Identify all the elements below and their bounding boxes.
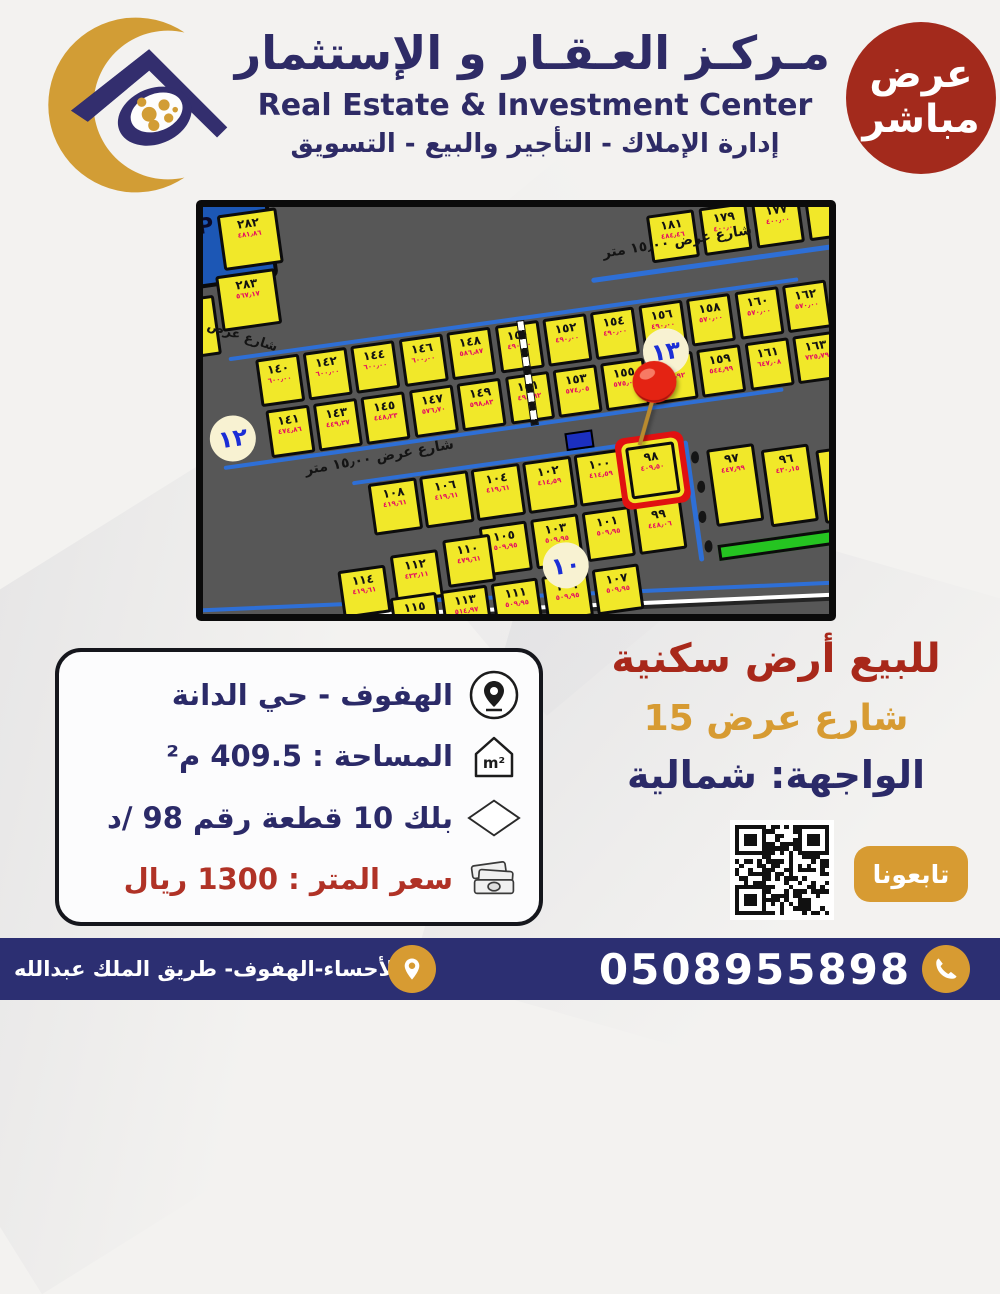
map-plot-١٥٤: ١٥٤٤٩٠٫٠٠ — [590, 306, 640, 360]
map-plot-١٠٦: ١٠٦٤١٩٫٦١ — [419, 470, 475, 528]
follow-us-badge[interactable]: تابعونا — [854, 846, 968, 902]
block-circle-12: ١٢ — [207, 413, 259, 465]
location-pin-icon — [388, 945, 436, 993]
card-row-block: بلك 10 قطعة رقم 98 /د — [77, 791, 521, 845]
direct-offer-badge: عرض مباشر — [846, 22, 996, 174]
block-text: بلك 10 قطعة رقم 98 /د — [107, 801, 453, 835]
svg-text:m²: m² — [483, 754, 505, 772]
map-plot-١٦١: ١٦١٦٤٧٫٠٨ — [744, 337, 794, 391]
map-plot-١١٣: ١١٣٥١٤٫٩٧ — [440, 585, 493, 621]
map-plot-١٠٧: ١٠٧٥٠٩٫٩٥ — [592, 563, 645, 615]
area-text: المساحة : 409.5 م² — [166, 739, 453, 773]
map-plot-partial — [215, 200, 277, 207]
house-m2-icon: m² — [467, 729, 521, 783]
company-title-arabic: مـركـز العـقـار و الإستثمار — [240, 26, 830, 80]
card-row-price: سعر المتر : 1300 ريال — [77, 852, 521, 906]
money-icon — [467, 852, 521, 906]
qr-pattern — [735, 825, 829, 915]
map-plot-١٦٢: ١٦٢٥٧٠٫٠٠ — [782, 279, 832, 333]
company-title-english: Real Estate & Investment Center — [240, 88, 830, 123]
footer-bar: الأحساء-الهفوف- طريق الملك عبدالله 05089… — [0, 938, 1000, 1000]
price-text: سعر المتر : 1300 ريال — [124, 862, 453, 896]
company-logo-icon — [42, 12, 234, 198]
map-plot-١٦٣: ١٦٣٧٢٥٫٧٩ — [792, 331, 836, 385]
map-plot-١٤٢: ١٤٢٦٠٠٫٠٠ — [303, 347, 353, 401]
map-plot-١٠٠: ١٠٠٤١٤٫٥٩ — [573, 448, 629, 506]
street-handwriting-mark — [704, 540, 714, 553]
map-plot-١١١: ١١١٥٠٩٫٩٥ — [491, 578, 544, 621]
map-plot-١٤٤: ١٤٤٦٠٠٫٠٠ — [351, 340, 401, 394]
map-plot-١٤٣: ١٤٣٤٤٩٫٣٧ — [313, 398, 363, 452]
map-plot-٩٨: ٩٨٤٠٩٫٥٠ — [625, 441, 681, 499]
map-rotated-layer: P شارع عرض ١٥٫٠٠ متر شارع عرض ١٥٫٠٠ متر … — [196, 200, 836, 621]
map-plot-١٦٠: ١٦٠٥٧٠٫٠٠ — [734, 286, 784, 340]
offer-street-width: شارع عرض 15 — [556, 698, 996, 739]
follow-us-label: تابعونا — [873, 860, 950, 889]
badge-line2: مباشر — [862, 98, 979, 143]
map-plot-١٥٢: ١٥٢٤٩٠٫٠٠ — [542, 313, 592, 367]
map-plot-١٠٢: ١٠٢٤١٤٫٥٩ — [522, 456, 578, 514]
map-plot-١٥٩: ١٥٩٥٤٤٫٩٩ — [696, 344, 746, 398]
footer-address: الأحساء-الهفوف- طريق الملك عبدالله — [14, 938, 401, 1000]
offer-headline: للبيع أرض سكنية — [556, 636, 996, 682]
map-plot-١٧٧: ١٧٧٤٠٠٫٠٠ — [751, 200, 805, 249]
diamond-plot-icon — [467, 791, 521, 845]
map-plot-١٤٨: ١٤٨٥٨٦٫٨٧ — [446, 327, 496, 381]
badge-line1: عرض — [869, 53, 972, 98]
map-plot-١١٤: ١١٤٤١٩٫٦١ — [337, 565, 391, 619]
map-plot-١٤٧: ١٤٧٥٧٦٫٧٠ — [409, 384, 459, 438]
map-plot-١٤١: ١٤١٤٧٤٫٨٦ — [265, 405, 315, 459]
header-title-block: مـركـز العـقـار و الإستثمار Real Estate … — [240, 26, 830, 159]
offer-column: للبيع أرض سكنية شارع عرض 15 الواجهة: شما… — [556, 636, 996, 797]
map-plot-١٠٨: ١٠٨٤١٩٫٦١ — [368, 477, 424, 535]
street-handwriting-mark — [698, 510, 708, 523]
map-plot-partial — [803, 200, 836, 241]
street-marker — [564, 429, 594, 451]
map-plot-٩٩: ٩٩٤٤٨٫٠٦ — [633, 499, 687, 555]
map-plot-١٠٤: ١٠٤٤١٩٫٦١ — [471, 463, 527, 521]
phone-icon — [922, 945, 970, 993]
map-plot-partial — [815, 445, 836, 524]
map-plot-١٤٩: ١٤٩٥٩٨٫٨٣ — [457, 378, 507, 432]
offer-facing: الواجهة: شمالية — [556, 753, 996, 797]
map-pin-icon — [618, 354, 684, 449]
details-card: الهفوف - حي الدانة m² المساحة : 409.5 م²… — [55, 648, 543, 926]
map-plot-١١٠: ١١٠٤٧٩٫٦١ — [442, 534, 496, 588]
parcel-label: P — [196, 213, 215, 240]
map-plot-١٥٣: ١٥٣٥٧٤٫٠٥ — [552, 364, 602, 418]
company-subtitle: إدارة الإملاك - التأجير والبيع - التسويق — [240, 129, 830, 159]
qr-code[interactable] — [730, 820, 834, 920]
street-handwriting-mark — [696, 480, 706, 493]
map-plot-١١٥: ١١٥٥٠١٫٨٨ — [390, 592, 443, 621]
map-plot-٩٦: ٩٦٤٣٠٫١٥ — [761, 443, 819, 527]
street-handwriting-mark — [690, 451, 700, 464]
map-plot-١٤٠: ١٤٠٦٠٠٫٠٠ — [255, 354, 305, 408]
map-plot-٢٨٢: ٢٨٢٤٨١٫٨٦ — [217, 207, 284, 271]
map-plot-٩٧: ٩٧٤٤٧٫٩٩ — [706, 443, 764, 527]
card-row-location: الهفوف - حي الدانة — [77, 668, 521, 722]
green-strip — [717, 529, 836, 561]
map-plot-١٤٥: ١٤٥٤٤٨٫٢٣ — [361, 391, 411, 445]
card-row-area: m² المساحة : 409.5 م² — [77, 729, 521, 783]
map-plot-١٤٦: ١٤٦٦٠٠٫٠٠ — [398, 333, 448, 387]
plat-map: P شارع عرض ١٥٫٠٠ متر شارع عرض ١٥٫٠٠ متر … — [196, 200, 836, 621]
map-plot-١٠١: ١٠١٥٠٩٫٩٥ — [582, 506, 636, 562]
map-plot-١٥٨: ١٥٨٥٧٠٫٠٠ — [686, 293, 736, 347]
flyer-root: { "header": { "title_ar": "مـركـز العـقـ… — [0, 0, 1000, 1000]
location-text: الهفوف - حي الدانة — [172, 678, 453, 712]
location-circle-icon — [467, 668, 521, 722]
footer-phone-number[interactable]: 0508955898 — [600, 938, 910, 1000]
phone-number-text: 0508955898 — [599, 945, 911, 994]
